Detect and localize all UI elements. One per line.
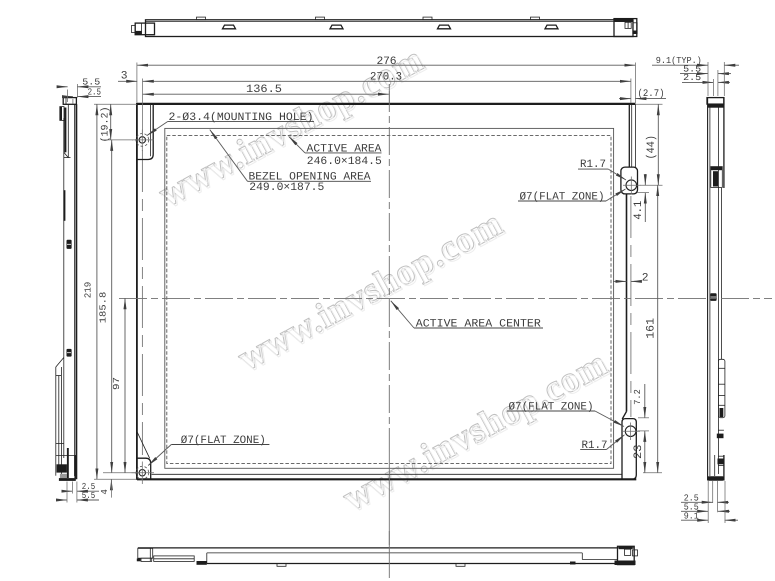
svg-text:185.8: 185.8 [97,292,108,324]
svg-text:270.3: 270.3 [370,72,402,84]
svg-text:9.1: 9.1 [684,511,699,522]
svg-text:246.0×184.5: 246.0×184.5 [307,156,382,168]
svg-text:2.5: 2.5 [683,72,701,83]
svg-text:136.5: 136.5 [246,84,282,96]
svg-text:5.5: 5.5 [82,490,95,501]
svg-text:R1.7: R1.7 [582,440,608,452]
svg-text:ACTIVE AREA: ACTIVE AREA [307,143,382,155]
svg-text:219: 219 [83,282,94,299]
svg-text:23: 23 [633,444,645,459]
svg-text:249.0×187.5: 249.0×187.5 [249,182,324,194]
svg-text:(2.7): (2.7) [638,88,665,100]
svg-text:(19.2): (19.2) [99,107,111,143]
svg-text:7.2: 7.2 [632,389,643,405]
svg-text:2: 2 [642,272,649,284]
svg-text:www.invshop.com: www.invshop.com [338,344,617,521]
svg-text:161: 161 [646,318,658,339]
svg-text:97: 97 [111,377,122,390]
svg-text:4.1: 4.1 [633,201,645,220]
svg-text:2.5: 2.5 [88,86,101,97]
svg-text:www.invshop.com: www.invshop.com [233,204,512,381]
svg-text:276: 276 [377,56,397,68]
svg-text:ACTIVE AREA CENTER: ACTIVE AREA CENTER [416,318,541,330]
svg-text:3: 3 [121,70,128,82]
svg-text:4: 4 [99,489,110,495]
svg-text:(44): (44) [645,135,658,160]
